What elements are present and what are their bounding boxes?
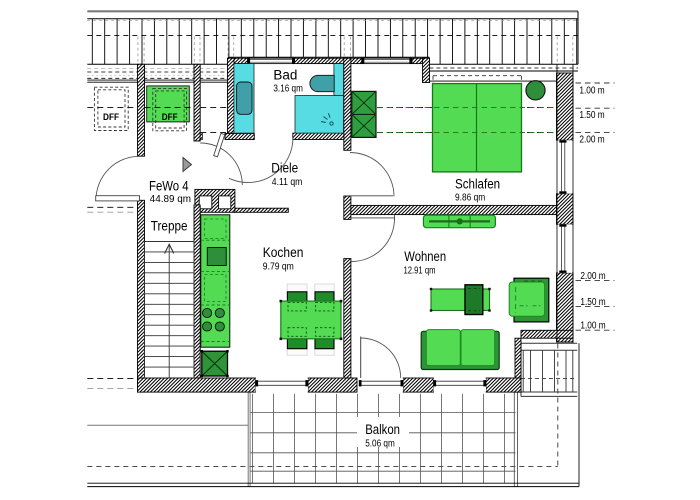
svg-text:Diele: Diele bbox=[271, 161, 298, 176]
svg-text:Bad: Bad bbox=[273, 68, 297, 83]
svg-text:2.00 m: 2.00 m bbox=[580, 271, 605, 282]
svg-text:1.00 m: 1.00 m bbox=[580, 321, 605, 332]
svg-text:9.79 qm: 9.79 qm bbox=[263, 262, 294, 273]
svg-text:DFF: DFF bbox=[162, 112, 178, 123]
svg-text:3.16 qm: 3.16 qm bbox=[273, 84, 303, 95]
svg-text:DFF: DFF bbox=[103, 112, 119, 123]
svg-text:1.50 m: 1.50 m bbox=[579, 110, 604, 121]
svg-text:4.11 qm: 4.11 qm bbox=[272, 177, 303, 188]
svg-text:2.00 m: 2.00 m bbox=[579, 134, 604, 145]
svg-text:1.00 m: 1.00 m bbox=[579, 86, 604, 97]
svg-text:Balkon: Balkon bbox=[365, 422, 400, 437]
svg-text:44.89 qm: 44.89 qm bbox=[150, 194, 191, 205]
svg-text:12.91 qm: 12.91 qm bbox=[404, 265, 436, 276]
svg-text:Treppe: Treppe bbox=[151, 219, 188, 234]
svg-text:9.86 qm: 9.86 qm bbox=[455, 193, 485, 204]
svg-text:1.50 m: 1.50 m bbox=[580, 297, 605, 308]
svg-text:5.06 qm: 5.06 qm bbox=[365, 439, 395, 450]
svg-text:FeWo 4: FeWo 4 bbox=[149, 179, 189, 194]
svg-text:Kochen: Kochen bbox=[263, 245, 304, 260]
svg-text:Schlafen: Schlafen bbox=[455, 176, 500, 191]
svg-text:Wohnen: Wohnen bbox=[404, 249, 446, 264]
